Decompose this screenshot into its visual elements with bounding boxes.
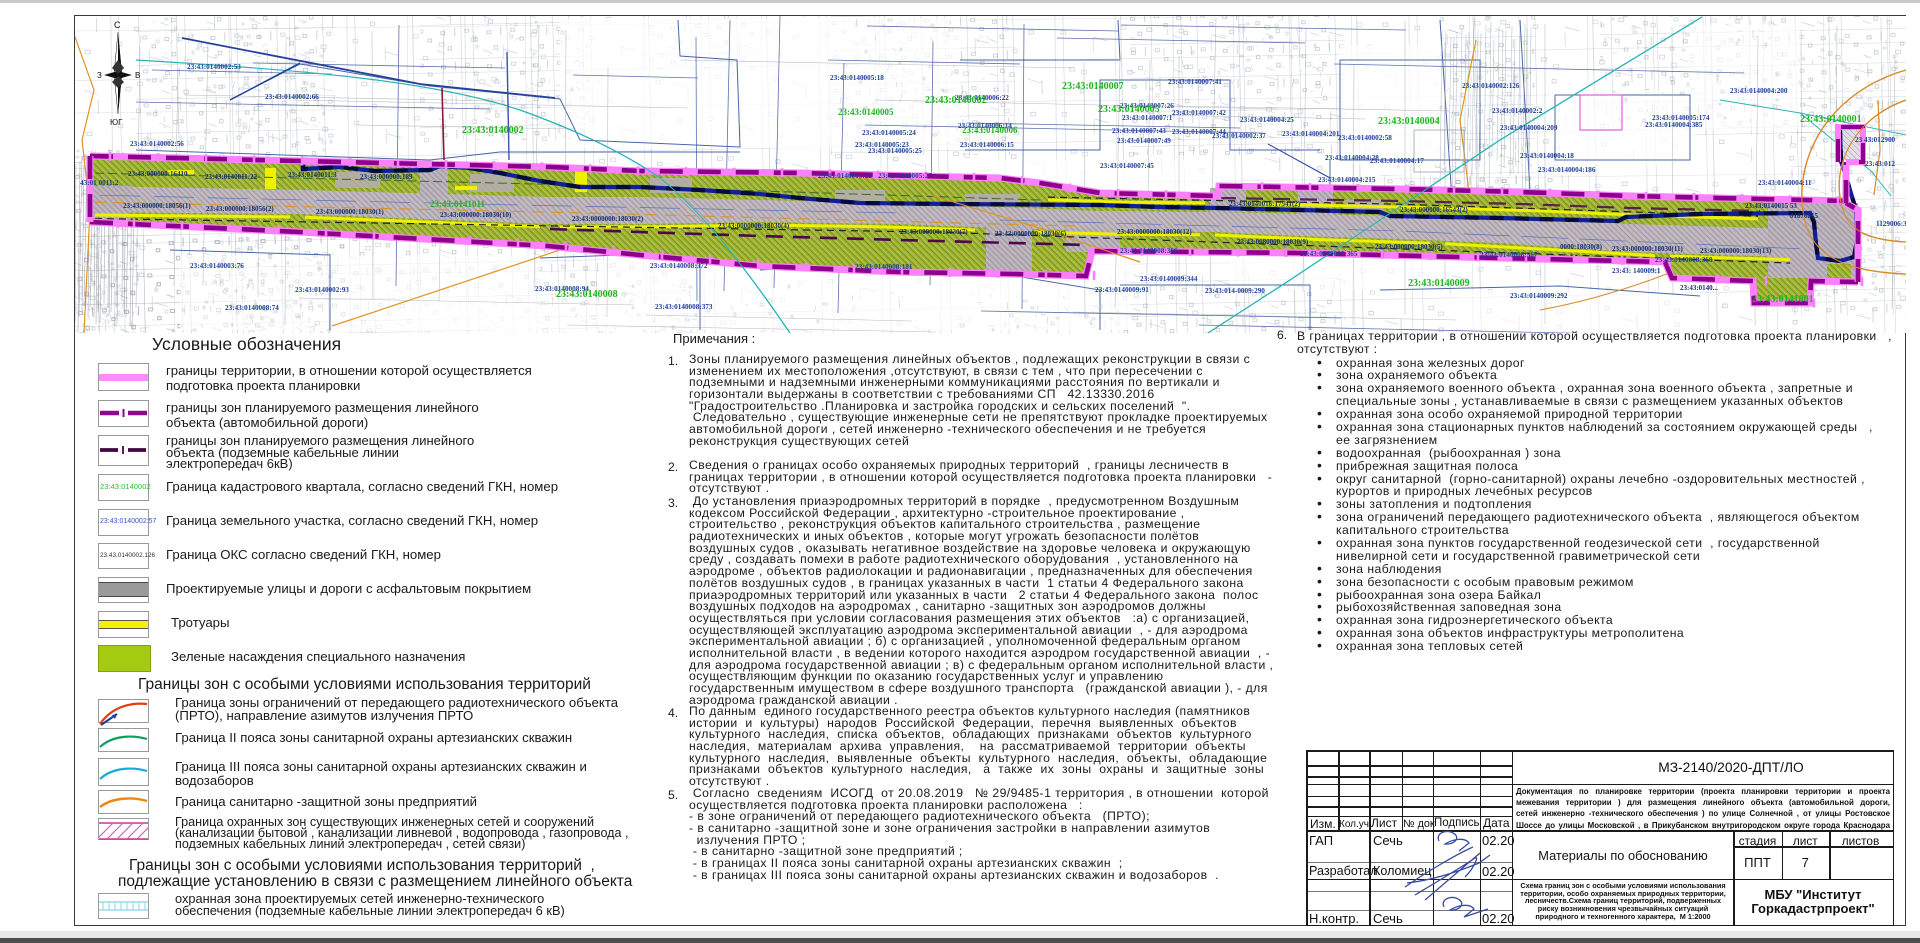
svg-text:43:01 0011:2: 43:01 0011:2 [80,179,119,187]
svg-text:23:43:0140007: 23:43:0140007 [1062,81,1124,92]
svg-text:23:43:000000:18056(2): 23:43:000000:18056(2) [206,205,274,213]
svg-text:23:43:0000000:18030(6): 23:43:0000000:18030(6) [995,230,1067,238]
svg-text:З: З [97,71,102,80]
svg-text:23:43:0140004:17: 23:43:0140004:17 [1370,157,1424,165]
svg-text:23:43:0140004:209: 23:43:0140004:209 [1500,124,1558,132]
svg-text:23:43:0140002:58: 23:43:0140002:58 [1338,134,1392,142]
svg-text:23:43:0140002:53: 23:43:0140002:53 [187,63,241,71]
svg-text:23:43:0140008:373: 23:43:0140008:373 [655,303,713,311]
svg-text:23:43:0140007:43: 23:43:0140007:43 [1112,127,1166,135]
svg-text:23:43:000000:18030(11): 23:43:000000:18030(11) [1612,245,1683,253]
svg-text:23:43:0140008:367: 23:43:0140008:367 [1480,251,1538,259]
svg-text:23:43:0140008:368: 23:43:0140008:368 [1655,256,1713,264]
svg-text:23:43:0140007:45: 23:43:0140007:45 [1100,162,1154,170]
svg-text:23:43:0140004:385: 23:43:0140004:385 [1645,121,1703,129]
svg-text:23:43:0140002:66: 23:43:0140002:66 [265,93,319,101]
svg-text:1129006:3: 1129006:3 [1876,220,1906,228]
svg-text:23:43:0000000:18030(12): 23:43:0000000:18030(12) [1117,228,1192,236]
svg-text:23:43:000000:16543(2): 23:43:000000:16543(2) [1400,206,1468,214]
svg-text:23 43:012900: 23 43:012900 [1855,136,1896,144]
svg-text:23:43:0140002:93: 23:43:0140002:93 [295,286,349,294]
svg-text:23:43:0140004: 23:43:0140004 [1378,116,1440,127]
svg-text:23:43:0140004:215: 23:43:0140004:215 [1318,176,1376,184]
svg-text:В: В [135,71,140,80]
svg-text:23:43: 140009:1: 23:43: 140009:1 [1612,267,1661,275]
svg-text:23:43:0140005: 23:43:0140005 [1098,104,1160,115]
svg-text:23:43:000000:18030(10): 23:43:000000:18030(10) [440,211,512,219]
svg-text:23:43:0140004:201: 23:43:0140004:201 [1282,130,1340,138]
svg-text:С: С [114,20,121,30]
svg-text:23:43:0140005:18: 23:43:0140005:18 [830,74,884,82]
svg-text:23:43:0140007:42: 23:43:0140007:42 [1172,109,1226,117]
svg-text:23:43:0140008:74: 23:43:0140008:74 [225,304,279,312]
svg-text:01870815: 01870815 [1790,212,1819,220]
svg-text:23:43:0080000:18030(9): 23:43:0080000:18030(9) [1237,238,1309,246]
svg-text:23:43:0000000:18030(2): 23:43:0000000:18030(2) [572,215,644,223]
svg-text:23:43:0140005:25: 23:43:0140005:25 [868,147,922,155]
svg-text:23:43:000000:18030(13): 23:43:000000:18030(13) [1700,247,1772,255]
svg-text:23:43:0000000:18030(4): 23:43:0000000:18030(4) [718,222,790,230]
svg-text:23:43:012: 23:43:012 [1865,160,1895,168]
svg-text:23:43:0140009: 23:43:0140009 [1408,278,1470,289]
svg-text:23:43:0140002: 23:43:0140002 [462,125,524,136]
svg-text:23:43:000000:189: 23:43:000000:189 [360,173,413,181]
svg-text:23:43:014-0009:290: 23:43:014-0009:290 [1205,287,1265,295]
svg-text:23:43:000000:18030(7): 23:43:000000:18030(7) [900,228,968,236]
svg-text:23:43:0140016:17541(2): 23:43:0140016:17541(2) [1229,200,1301,208]
svg-text:23:43:0140011:3: 23:43:0140011:3 [288,171,337,179]
svg-text:23:43:0140006:15: 23:43:0140006:15 [960,141,1014,149]
svg-text:23:43:0140004:18: 23:43:0140004:18 [1520,152,1574,160]
svg-text:23:43:0140008:366: 23:43:0140008:366 [1120,247,1178,255]
svg-text:23:43:000000:18056(1): 23:43:000000:18056(1) [123,202,191,210]
svg-text:23:43:0140003:76: 23:43:0140003:76 [190,262,244,270]
svg-text:23:43:000000:18030(5): 23:43:000000:18030(5) [1375,243,1443,251]
svg-text:23:43:0140002:2: 23:43:0140002:2 [1492,107,1543,115]
svg-text:23:43:0140005:24: 23:43:0140005:24 [862,129,916,137]
svg-text:23:43:0140004:25: 23:43:0140004:25 [1240,116,1294,124]
svg-text:23:43:0140...: 23:43:0140... [1680,284,1718,292]
svg-text:23:43:0140008:181: 23:43:0140008:181 [855,263,913,271]
svg-text:23:43:0140004:200: 23:43:0140004:200 [1730,87,1788,95]
svg-text:23:43:0140007:41: 23:43:0140007:41 [1168,78,1222,86]
svg-text:23:43:0140002: 23:43:0140002 [925,95,987,106]
svg-text:0000:18030(8): 0000:18030(8) [1560,243,1603,251]
svg-text:23:43:0140006: 23:43:0140006 [962,125,1018,135]
svg-text:23:43:0140004:186: 23:43:0140004:186 [1538,166,1596,174]
svg-text:23:43:0140002:56: 23:43:0140002:56 [130,140,184,148]
svg-text:23:43:0140005:22: 23:43:0140005:22 [818,172,872,180]
svg-text:23:43:0140015 53: 23:43:0140015 53 [1745,202,1797,210]
svg-text:23:43:0140007:1: 23:43:0140007:1 [1122,114,1173,122]
svg-text:23:43:0140009:292: 23:43:0140009:292 [1510,292,1568,300]
svg-text:23:43:0140008:365: 23:43:0140008:365 [1300,250,1358,258]
svg-text:23:43:0140009:91: 23:43:0140009:91 [1095,286,1149,294]
svg-text:23:43:0140005: 23:43:0140005 [838,107,894,117]
svg-text:23:43:000000:16410: 23:43:000000:16410 [128,170,188,178]
svg-text:23:43:0140011:22: 23:43:0140011:22 [205,173,258,181]
svg-text:23:43:0140007:49: 23:43:0140007:49 [1117,137,1171,145]
svg-text:23:43:0141001: 23:43:0141001 [1752,294,1814,305]
svg-text:23:43:0141011: 23:43:0141011 [430,199,485,209]
svg-text:23:43:0140008: 23:43:0140008 [556,289,618,300]
svg-text:23:43:0140002:126: 23:43:0140002:126 [1462,82,1520,90]
svg-text:23:43:000000:18030(1): 23:43:000000:18030(1) [316,208,384,216]
svg-text:23:43:0140004:11: 23:43:0140004:11 [1758,179,1812,187]
svg-text:23:43:0140005:27: 23:43:0140005:27 [878,172,932,180]
svg-text:23:43:0140002:37: 23:43:0140002:37 [1212,132,1266,140]
svg-text:23:43:0140008:372: 23:43:0140008:372 [650,262,708,270]
svg-text:23:43:0140001: 23:43:0140001 [1800,114,1862,125]
svg-text:23:43:0140009:344: 23:43:0140009:344 [1140,275,1198,283]
svg-text:ЮГ: ЮГ [110,118,123,127]
